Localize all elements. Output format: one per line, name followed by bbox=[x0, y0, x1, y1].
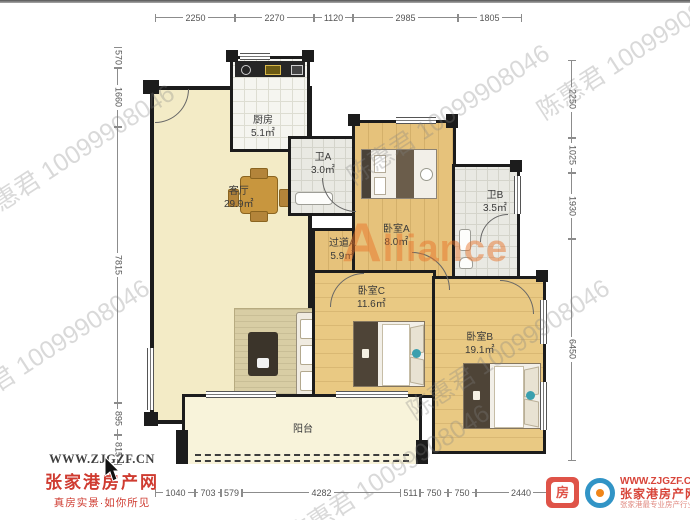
bed bbox=[463, 363, 541, 429]
dimension-right: 1025 bbox=[568, 137, 576, 174]
room-label-bedroom-c: 卧室C 11.6㎡ bbox=[357, 285, 386, 311]
window bbox=[147, 348, 154, 410]
coffee-table bbox=[248, 332, 278, 376]
dimension-bottom: 750 bbox=[447, 489, 477, 497]
site-tagline: 张家港最专业房产行业门户 bbox=[620, 501, 690, 510]
pillow bbox=[374, 155, 386, 173]
dimension-right: 2250 bbox=[568, 60, 576, 139]
balcony-window-dashed bbox=[195, 454, 409, 456]
site-name: 张家港房产网 bbox=[26, 468, 178, 493]
dimension-left: 895 bbox=[114, 402, 122, 436]
room-label-bedroom-b: 卧室B 19.1㎡ bbox=[465, 331, 494, 357]
window bbox=[336, 391, 408, 398]
room-label-balcony: 阳台 bbox=[293, 423, 313, 436]
window bbox=[240, 53, 270, 60]
dimension-bottom: 579 bbox=[220, 489, 243, 497]
mouse-cursor-icon bbox=[103, 456, 121, 482]
wall-column bbox=[348, 114, 360, 126]
watermark-agent: 陈惠君 10099908046 bbox=[529, 0, 690, 127]
dimension-right: 1930 bbox=[568, 172, 576, 240]
wardrobe bbox=[464, 364, 490, 428]
bed bbox=[353, 321, 425, 387]
dimension-top: 1120 bbox=[313, 14, 354, 22]
floorplan-image: 陈惠君 10099908046 陈惠君 10099908046 陈惠君 1009… bbox=[0, 0, 690, 520]
sink-icon bbox=[291, 65, 303, 75]
room-balcony: 阳台 bbox=[182, 394, 422, 464]
dimension-left: 1660 bbox=[114, 67, 122, 128]
dimension-top: 1805 bbox=[457, 14, 522, 22]
wall-column bbox=[416, 440, 428, 464]
toilet bbox=[459, 257, 473, 269]
pillow bbox=[524, 398, 539, 427]
site-url: WWW.ZJGZF.CN bbox=[620, 476, 690, 488]
wall-column bbox=[302, 50, 314, 62]
room-label-hallway-a: 过道A 5.9㎡ bbox=[329, 237, 356, 263]
window bbox=[540, 300, 547, 344]
mattress bbox=[494, 366, 524, 428]
wall-column bbox=[144, 412, 158, 426]
site-slogan: 真房实景·如你所见 bbox=[26, 495, 178, 510]
stove-icon bbox=[265, 65, 281, 75]
wall-column bbox=[510, 160, 522, 172]
window bbox=[396, 117, 436, 124]
headboard bbox=[362, 150, 371, 198]
watermark-agent: 陈惠君 10099908046 bbox=[0, 269, 156, 427]
dimension-left: 570 bbox=[114, 47, 122, 69]
wardrobe bbox=[354, 322, 378, 386]
balcony-window-dashed bbox=[195, 460, 409, 462]
stove-burner-icon bbox=[241, 65, 251, 75]
pillow bbox=[410, 357, 424, 386]
window bbox=[540, 382, 547, 430]
room-label-living: 客厅 29.9㎡ bbox=[224, 185, 253, 211]
house-app-icon: 房 bbox=[546, 477, 579, 508]
room-label-bedroom-a: 卧室A 8.0㎡ bbox=[383, 223, 410, 249]
bed bbox=[361, 149, 437, 199]
room-label-bath-a: 卫A 3.0㎡ bbox=[311, 151, 335, 177]
dimension-bottom: 750 bbox=[419, 489, 449, 497]
wall-column bbox=[446, 114, 458, 128]
dimension-right: 6450 bbox=[568, 238, 576, 461]
accent-cushion bbox=[526, 391, 535, 400]
site-url: WWW.ZJGZF.CN bbox=[26, 452, 178, 467]
wall-column bbox=[226, 50, 238, 62]
dimension-bottom: 511 bbox=[400, 489, 421, 497]
dimension-bottom: 703 bbox=[194, 489, 222, 497]
wall-column bbox=[536, 270, 548, 282]
room-label-bath-b: 卫B 3.5㎡ bbox=[483, 189, 507, 215]
blanket bbox=[396, 150, 414, 198]
sink bbox=[459, 229, 471, 251]
branding-right: 房 WWW.ZJGZF.CN 张家港房产网 张家港最专业房产行业门户 bbox=[546, 476, 690, 510]
cushion bbox=[420, 168, 433, 181]
kitchen-counter bbox=[235, 61, 305, 77]
dimension-left: 7815 bbox=[114, 126, 122, 404]
accent-cushion bbox=[412, 349, 421, 358]
pillow bbox=[374, 177, 386, 195]
swirl-logo-icon bbox=[585, 478, 615, 508]
dimension-bottom: 4282 bbox=[241, 489, 402, 497]
window bbox=[206, 391, 276, 398]
window bbox=[514, 176, 521, 214]
dimension-top: 2250 bbox=[155, 14, 236, 22]
chair-icon bbox=[250, 211, 268, 222]
dimension-top: 2270 bbox=[234, 14, 315, 22]
room-label-kitchen: 厨房 5.1㎡ bbox=[251, 114, 275, 140]
dimension-top: 2985 bbox=[352, 14, 459, 22]
chair-icon bbox=[250, 168, 268, 179]
branding-left: WWW.ZJGZF.CN 张家港房产网 真房实景·如你所见 bbox=[26, 452, 178, 510]
mattress bbox=[382, 324, 410, 386]
